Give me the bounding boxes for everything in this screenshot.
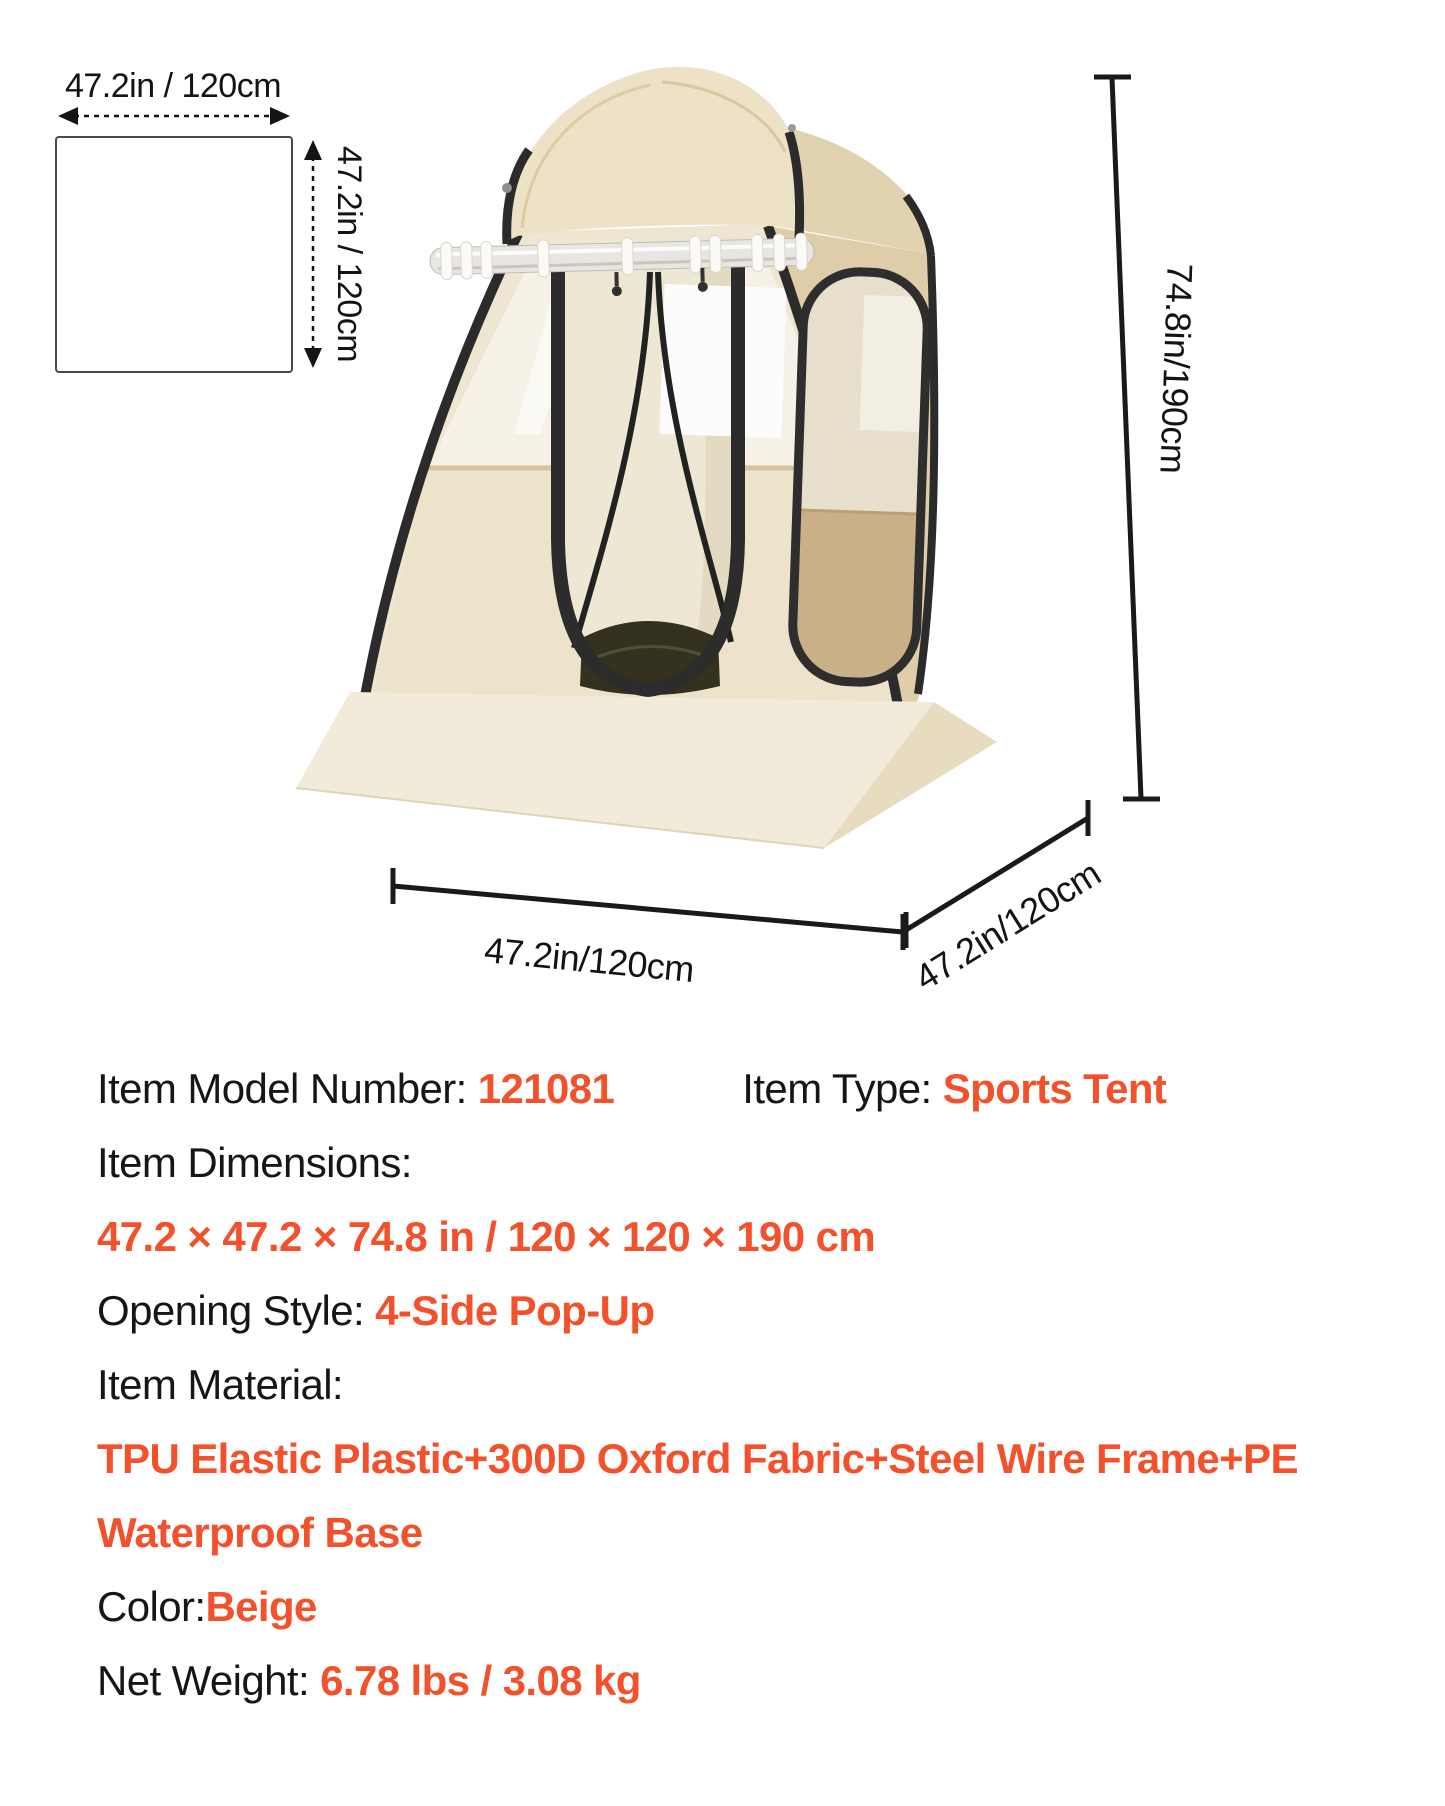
snap-buckle-icon [502, 183, 512, 193]
spec-material-value-line1: TPU Elastic Plastic+300D Oxford Fabric+S… [97, 1435, 1298, 1482]
spec-material-label: Item Material: [97, 1361, 343, 1408]
snap-buckle-icon [788, 124, 796, 132]
arrowhead-down-icon [304, 348, 322, 368]
arrowhead-up-icon [304, 140, 322, 160]
square-width-label: 47.2in / 120cm [65, 67, 281, 105]
tent-depth-dimension: 47.2in/120cm [906, 800, 1107, 998]
square-height-label: 47.2in / 120cm [330, 146, 368, 362]
tent-width-dimension: 47.2in/120cm [393, 868, 903, 990]
spec-weight-value: 6.78 lbs / 3.08 kg [320, 1657, 641, 1704]
spec-color-label: Color: [97, 1583, 205, 1630]
arrowhead-left-icon [58, 107, 78, 125]
width-dimension-line [393, 886, 903, 932]
spec-row-weight: Net Weight: 6.78 lbs / 3.08 kg [97, 1644, 1397, 1718]
size-diagram-square [56, 137, 292, 372]
size-diagram: 47.2in / 120cm 47.2in / 120cm [56, 67, 368, 372]
tent-roof-front [505, 67, 800, 242]
spec-row-material-value-2: Waterproof Base [97, 1496, 1397, 1570]
tent-height-dimension: 74.8in/190cm [1094, 77, 1201, 799]
tent-illustration [296, 67, 997, 848]
arrowhead-right-icon [270, 107, 290, 125]
height-arrow [304, 140, 322, 368]
spec-row-model-type: Item Model Number: 121081Item Type: Spor… [97, 1052, 1397, 1126]
width-arrow [58, 107, 290, 125]
spec-row-color: Color:Beige [97, 1570, 1397, 1644]
spec-row-material-label: Item Material: [97, 1348, 1397, 1422]
spec-dimensions-value: 47.2 × 47.2 × 74.8 in / 120 × 120 × 190 … [97, 1213, 875, 1260]
spec-type-label: Item Type: [742, 1065, 942, 1112]
spec-material-value-line2: Waterproof Base [97, 1509, 423, 1556]
spec-model-label: Item Model Number: [97, 1065, 478, 1112]
spec-row-opening: Opening Style: 4-Side Pop-Up [97, 1274, 1397, 1348]
spec-row-material-value-1: TPU Elastic Plastic+300D Oxford Fabric+S… [97, 1422, 1397, 1496]
spec-row-dimensions-label: Item Dimensions: [97, 1126, 1397, 1200]
interior-back-window [659, 284, 786, 438]
product-spec-sheet: 47.2in / 120cm 47.2in / 120cm [0, 0, 1445, 1806]
tent-height-label: 74.8in/190cm [1152, 263, 1200, 474]
tent-figure: 47.2in / 120cm 47.2in / 120cm [0, 0, 1445, 1050]
tent-width-label: 47.2in/120cm [483, 929, 696, 990]
tent-depth-label: 47.2in/120cm [907, 852, 1107, 998]
spec-dimensions-label: Item Dimensions: [97, 1139, 412, 1186]
spec-model-value: 121081 [478, 1065, 615, 1112]
spec-weight-label: Net Weight: [97, 1657, 320, 1704]
spec-color-value: Beige [205, 1583, 316, 1630]
spec-opening-value: 4-Side Pop-Up [375, 1287, 654, 1334]
spec-type-value: Sports Tent [943, 1065, 1167, 1112]
spec-list: Item Model Number: 121081Item Type: Spor… [97, 1052, 1397, 1718]
height-dimension-line [1112, 78, 1141, 798]
spec-opening-label: Opening Style: [97, 1287, 375, 1334]
tent-side-window [791, 270, 929, 684]
spec-row-dimensions-value: 47.2 × 47.2 × 74.8 in / 120 × 120 × 190 … [97, 1200, 1397, 1274]
